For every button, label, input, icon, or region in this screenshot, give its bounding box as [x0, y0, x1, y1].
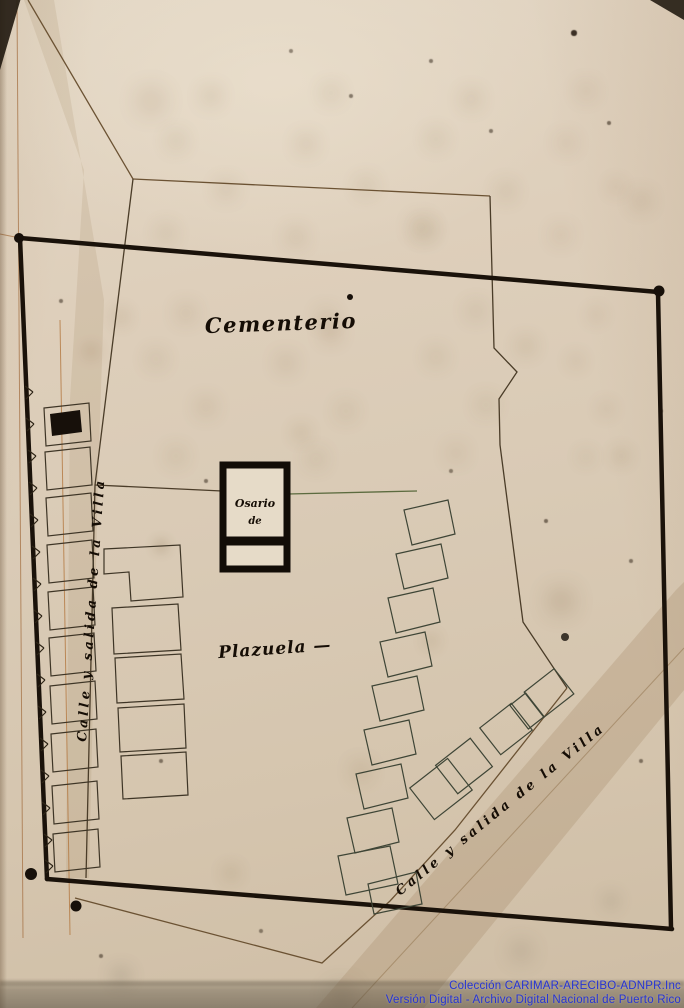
- road-shading: [24, 0, 684, 1008]
- lot: [388, 588, 440, 633]
- lot: [347, 808, 399, 853]
- scanned-map-page: Osario de Cementerio Plazuela — Calle y …: [0, 0, 684, 1008]
- cemetery-north-line: [133, 179, 490, 196]
- lot: [372, 676, 424, 721]
- chapel-structure: Osario de: [223, 465, 287, 569]
- middle-lots: [104, 545, 188, 799]
- watermark-collection-line: Colección CARIMAR-ARECIBO-ADNPR.Inc: [386, 980, 681, 994]
- lot: [118, 704, 186, 752]
- filled-structure: [50, 410, 82, 436]
- corner-marker: [654, 286, 665, 297]
- plaza-label: Plazuela —: [217, 635, 333, 663]
- corner-marker: [14, 233, 24, 243]
- lot: [404, 500, 455, 545]
- left-road-band: [24, 0, 104, 878]
- archive-watermark: Colección CARIMAR-ARECIBO-ADNPR.Inc Vers…: [386, 980, 681, 1007]
- page-edge-shadow: [0, 0, 7, 1008]
- lot: [380, 632, 432, 677]
- ink-dot: [347, 294, 353, 300]
- lot-l-shaped: [104, 545, 183, 601]
- cemetery-south-line-west: [95, 485, 222, 491]
- road-edge-top: [28, 0, 133, 179]
- watermark-version-line: Versión Digital - Archivo Digital Nacion…: [386, 994, 681, 1008]
- lot: [338, 846, 398, 895]
- lot: [115, 654, 184, 703]
- lot: [396, 544, 448, 589]
- chapel-label-line2: de: [248, 516, 261, 527]
- lot: [436, 738, 493, 793]
- right-road-band: [316, 582, 684, 1008]
- map-drawing: Osario de Cementerio Plazuela — Calle y …: [0, 0, 684, 1008]
- cemetery-south-line-east-green: [288, 491, 417, 494]
- cemetery-east-line: [490, 196, 567, 688]
- corner-marker: [25, 868, 37, 880]
- lot: [480, 703, 532, 754]
- plot-boundary-thick: [20, 238, 672, 929]
- cemetery-label: Cementerio: [204, 308, 357, 338]
- ink-dot: [561, 633, 569, 641]
- lot: [112, 604, 181, 654]
- chapel-label-line1: Osario: [235, 497, 275, 510]
- lot: [121, 752, 188, 799]
- corner-marker: [71, 901, 82, 912]
- lot: [356, 764, 408, 809]
- lot: [364, 720, 416, 765]
